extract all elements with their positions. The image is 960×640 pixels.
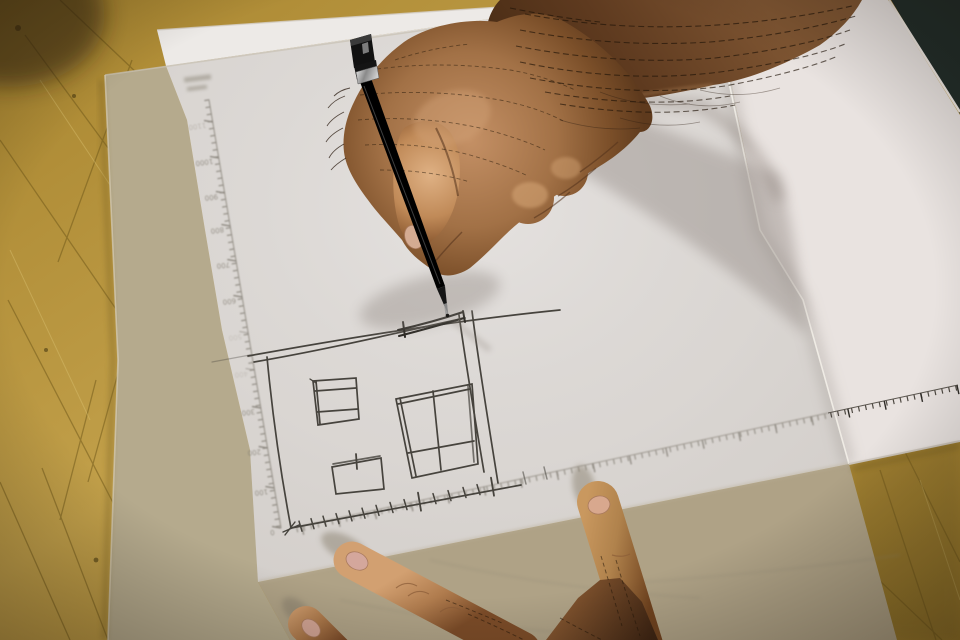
photo-canvas: 1100 1000 900 800 700 600 500 400 300 20…: [0, 0, 960, 640]
vignette: [0, 0, 960, 640]
photo-drawing-floorplan: 1100 1000 900 800 700 600 500 400 300 20…: [0, 0, 960, 640]
